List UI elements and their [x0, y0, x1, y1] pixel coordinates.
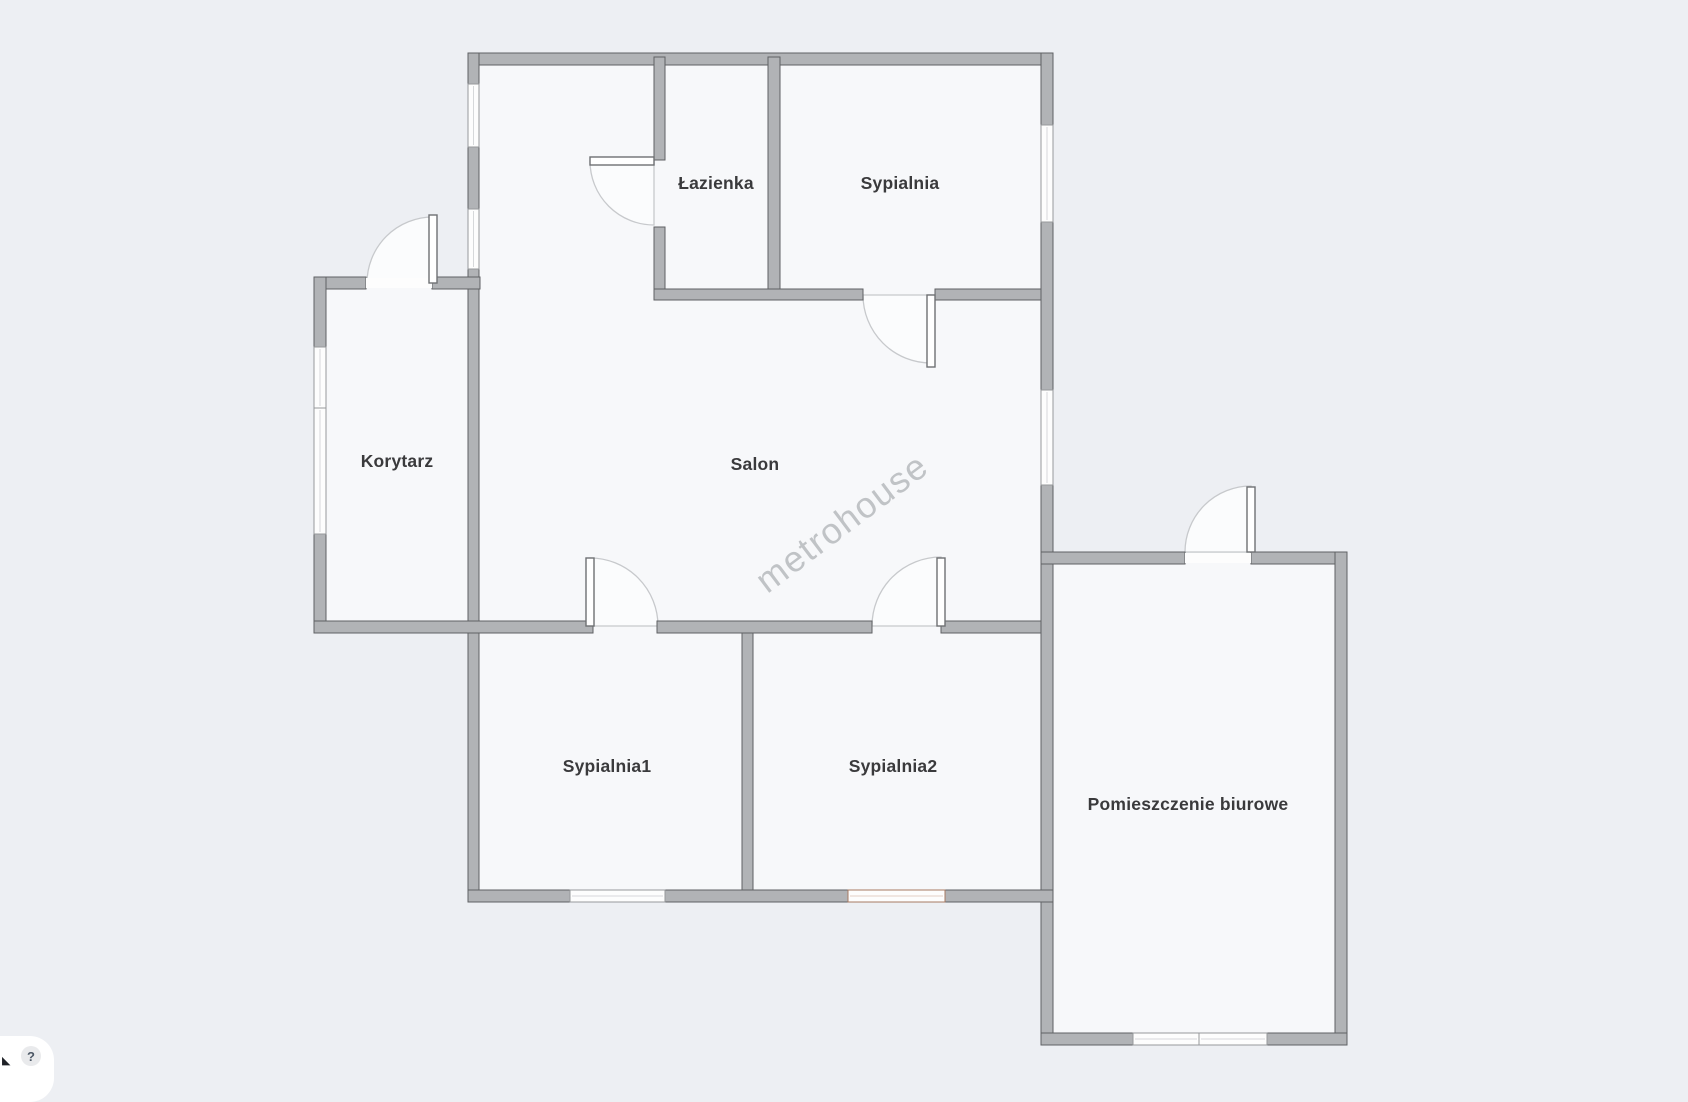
room-label-lazienka: Łazienka — [678, 173, 754, 193]
floor-plan-canvas: Łazienka Sypialnia Korytarz Salon Sypial… — [0, 0, 1688, 1080]
wall-salon-south-a — [314, 621, 593, 633]
door-leaf-lazienka — [590, 157, 654, 165]
room-label-sypialnia: Sypialnia — [861, 173, 940, 193]
room-label-sypialnia2: Sypialnia2 — [849, 756, 938, 776]
wall-lazienka-east — [768, 57, 780, 300]
wall-main-top — [468, 53, 1053, 65]
door-leaf-entry — [429, 215, 437, 283]
room-label-sypialnia1: Sypialnia1 — [563, 756, 652, 776]
door-leaf-sypialnia1 — [586, 558, 594, 626]
wall-biurowe-top-right — [1251, 552, 1347, 564]
threshold-biurowe — [1185, 553, 1251, 563]
wall-salon-south-c — [941, 621, 1041, 633]
room-label-salon: Salon — [731, 454, 780, 474]
wall-lazienka-sypialnia-south-left — [654, 289, 863, 300]
door-leaf-sypialnia2 — [937, 558, 945, 626]
room-label-pomieszczenie-biurowe: Pomieszczenie biurowe — [1088, 794, 1289, 814]
threshold-entry — [366, 278, 432, 288]
wall-sypialnia1-2-divider — [742, 633, 753, 890]
help-button[interactable]: ? — [21, 1046, 41, 1066]
wall-sypialnia-south-right — [935, 289, 1041, 300]
floor-plan-viewer: { "colors": { "background": "#edeff3", "… — [0, 0, 1688, 1080]
wall-main-left — [468, 53, 479, 902]
door-swing-entry — [367, 217, 433, 283]
room-label-korytarz: Korytarz — [361, 451, 434, 471]
wall-korytarz-top-right — [432, 277, 480, 289]
wall-lazienka-west-upper — [654, 57, 665, 160]
door-leaf-biurowe — [1247, 487, 1255, 552]
resize-handle-icon[interactable]: ◣ — [2, 1054, 10, 1068]
main-building-floor — [474, 59, 1047, 896]
door-swing-pomieszczenie-biurowe — [1185, 486, 1251, 552]
wall-salon-south-b — [657, 621, 872, 633]
door-leaf-sypialnia — [927, 295, 935, 367]
wall-biurowe-right — [1335, 552, 1347, 1045]
wall-biurowe-top-left — [1041, 552, 1185, 564]
wall-main-bottom — [468, 890, 1053, 902]
